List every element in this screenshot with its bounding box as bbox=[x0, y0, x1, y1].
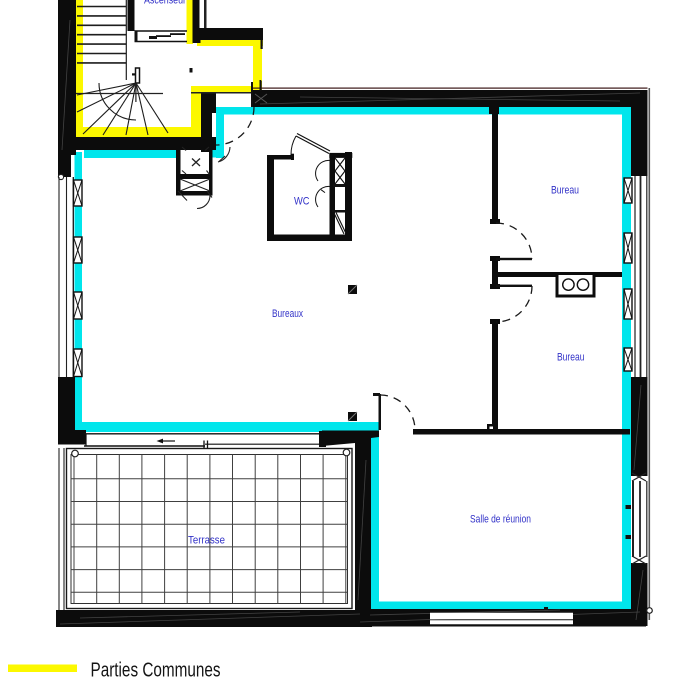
svg-text:WC: WC bbox=[294, 196, 310, 208]
svg-text:Parties Communes: Parties Communes bbox=[91, 660, 221, 682]
svg-text:Salle de réunion: Salle de réunion bbox=[470, 514, 531, 526]
svg-text:Bureau: Bureau bbox=[551, 185, 579, 197]
svg-text:Terrasse: Terrasse bbox=[188, 535, 225, 547]
svg-text:Bureaux: Bureaux bbox=[272, 308, 303, 320]
svg-text:Bureau: Bureau bbox=[557, 352, 585, 364]
svg-text:Ascenseur: Ascenseur bbox=[144, 0, 186, 7]
